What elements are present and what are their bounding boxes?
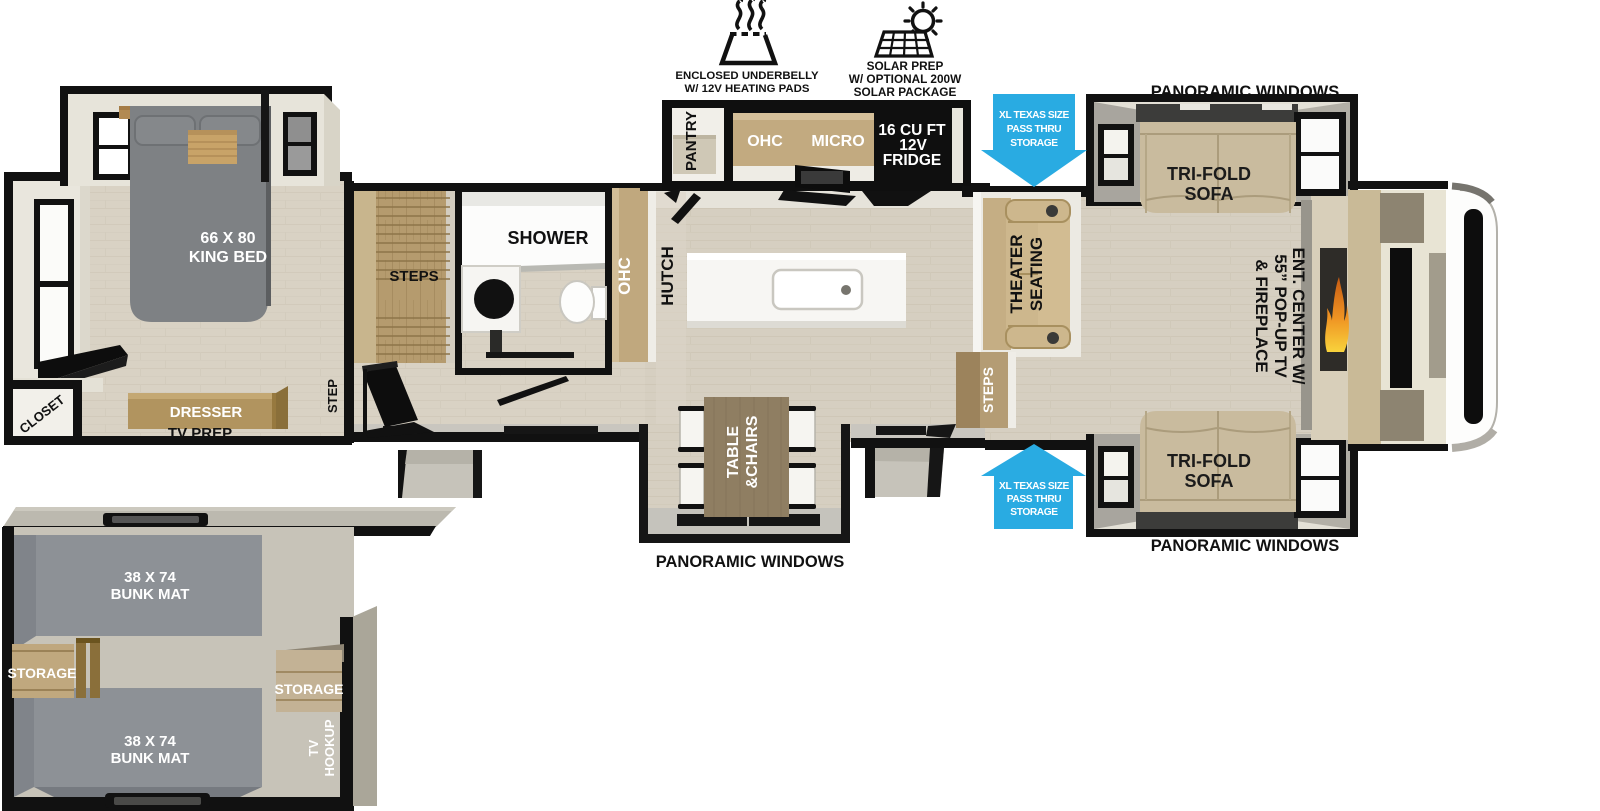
- svg-text:W/ OPTIONAL 200W: W/ OPTIONAL 200W: [849, 72, 962, 86]
- svg-text:38 X 74: 38 X 74: [124, 569, 176, 586]
- svg-text:STEP: STEP: [325, 379, 340, 413]
- svg-text:SEATING: SEATING: [1027, 237, 1046, 311]
- svg-text:ENT. CENTER W/: ENT. CENTER W/: [1289, 248, 1308, 385]
- svg-text:STORAGE: STORAGE: [1010, 507, 1058, 518]
- svg-text:TV PREP: TV PREP: [168, 425, 232, 442]
- svg-text:STORAGE: STORAGE: [1010, 138, 1058, 149]
- svg-text:HOOKUP: HOOKUP: [322, 719, 337, 776]
- svg-text:SOFA: SOFA: [1184, 184, 1233, 204]
- svg-text:XL TEXAS SIZE: XL TEXAS SIZE: [999, 481, 1070, 492]
- svg-text:TRI-FOLD: TRI-FOLD: [1167, 451, 1251, 471]
- svg-text:OHC: OHC: [747, 133, 783, 150]
- svg-text:SOLAR PREP: SOLAR PREP: [867, 59, 944, 73]
- svg-text:SHOWER: SHOWER: [508, 228, 589, 248]
- svg-text:& FIREPLACE: & FIREPLACE: [1252, 259, 1271, 372]
- svg-text:55” POP-UP TV: 55” POP-UP TV: [1271, 254, 1290, 378]
- svg-text:STORAGE: STORAGE: [275, 681, 344, 697]
- svg-text:PANTRY: PANTRY: [683, 111, 700, 171]
- svg-text:SOLAR PACKAGE: SOLAR PACKAGE: [854, 85, 957, 99]
- svg-text:KING BED: KING BED: [189, 249, 267, 266]
- svg-text:38 X 74: 38 X 74: [124, 733, 176, 750]
- svg-text:W/ 12V HEATING PADS: W/ 12V HEATING PADS: [685, 83, 810, 95]
- svg-text:TABLE: TABLE: [725, 426, 742, 478]
- svg-text:66 X 80: 66 X 80: [200, 230, 255, 247]
- svg-text:SOFA: SOFA: [1184, 471, 1233, 491]
- svg-text:ENCLOSED UNDERBELLY: ENCLOSED UNDERBELLY: [675, 70, 819, 82]
- svg-text:BUNK MAT: BUNK MAT: [111, 750, 190, 767]
- svg-text:&CHAIRS: &CHAIRS: [744, 415, 761, 488]
- svg-text:STEPS: STEPS: [980, 367, 996, 413]
- svg-text:TV: TV: [306, 739, 321, 756]
- svg-text:THEATER: THEATER: [1007, 234, 1026, 313]
- svg-text:HUTCH: HUTCH: [658, 246, 677, 306]
- svg-text:PANORAMIC WINDOWS: PANORAMIC WINDOWS: [1151, 537, 1340, 555]
- svg-text:STORAGE: STORAGE: [8, 665, 77, 681]
- svg-text:PANORAMIC WINDOWS: PANORAMIC WINDOWS: [1151, 83, 1340, 101]
- svg-text:BUNK MAT: BUNK MAT: [111, 586, 190, 603]
- svg-text:PASS THRU: PASS THRU: [1007, 494, 1062, 505]
- svg-text:TRI-FOLD: TRI-FOLD: [1167, 164, 1251, 184]
- svg-text:STEPS: STEPS: [389, 268, 438, 285]
- svg-text:DRESSER: DRESSER: [170, 404, 243, 421]
- svg-text:FRIDGE: FRIDGE: [883, 152, 942, 169]
- svg-text:MICRO: MICRO: [811, 133, 864, 150]
- svg-text:XL TEXAS SIZE: XL TEXAS SIZE: [999, 110, 1070, 121]
- svg-text:OHC: OHC: [615, 257, 634, 295]
- svg-text:PANORAMIC WINDOWS: PANORAMIC WINDOWS: [656, 553, 845, 571]
- svg-text:PASS THRU: PASS THRU: [1007, 124, 1062, 135]
